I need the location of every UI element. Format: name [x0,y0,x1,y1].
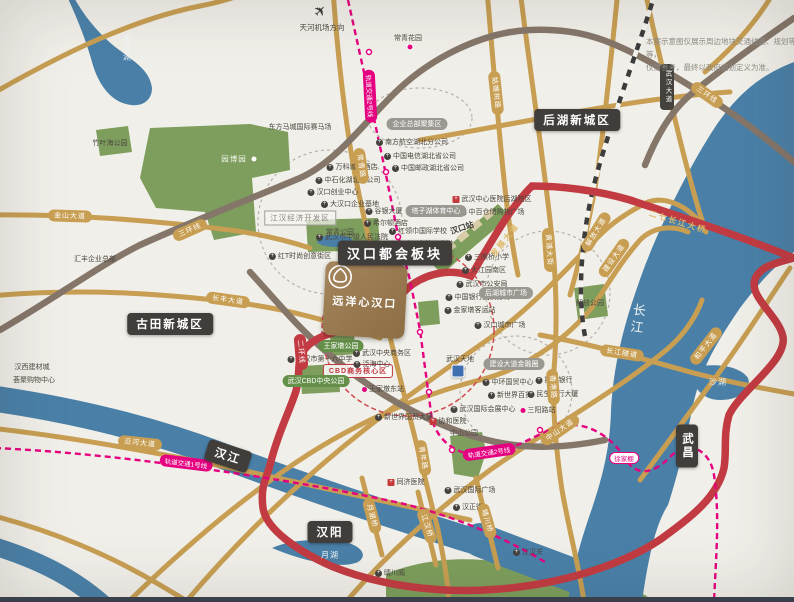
poi-marker-icon [384,153,391,160]
poi-marker-icon [269,253,276,260]
poi-marker-icon [488,392,495,399]
goldpill-label: 黄浦大街 [541,228,556,273]
park-dot [252,157,257,162]
poi-marker-icon [353,350,360,357]
graypill-label: 企业总部聚集区 [387,118,448,130]
poi-label: 武汉国际广场 [445,485,496,495]
metropill-label: 轨道交通2号线 [363,69,378,122]
poi-label: 常青花园 [394,33,422,43]
poi-label: 汉口城市广场 [475,320,526,330]
poi-label: 万科城市酒店 [327,162,378,172]
poi-label: 荟聚购物中心 [13,375,55,385]
poi-label: 武汉国际会展中心 [451,404,516,414]
poi-marker-icon [465,254,472,261]
goldpill-label: 中山大道 [539,412,582,447]
poi-label: 同济医院 [388,477,425,487]
goldpill-label: 金山大道 [48,209,92,223]
hospital-icon [388,479,395,486]
goldpill-label: 建设大道 [596,237,631,280]
park-label-yuanboyuan: 园博园 [221,154,247,165]
poi-marker-icon [453,504,460,511]
poi-marker-icon [288,356,295,363]
poi-label: 南方航空湖北分公司 [376,137,448,147]
lake-label-yuehu: 月湖 [321,550,339,561]
poi-marker-icon [366,208,373,215]
river-label-yangtze: 长江 [625,302,649,338]
goldpill-label: 和平大道 [688,325,725,367]
poi-label: 东方马城国际赛马场 [269,122,332,132]
poi-marker-icon [354,361,361,368]
goldpill-label: 晴川桥 [476,502,497,540]
poi-marker-icon [451,406,458,413]
district-label-hankou-metro: 汉口都会板块 [338,241,452,266]
poi-marker-icon [375,414,382,421]
poi-marker-icon [364,220,371,227]
poi-label: 中国电信湖北省公司 [384,151,456,161]
goldpill-label: 香港路 [546,369,560,406]
poi-label: 竹叶海公园 [93,138,128,148]
metro-station-icon [362,387,367,392]
goldpill-label: 江汉桥 [416,507,439,545]
poi-label: 常青公园 [326,227,354,237]
stationpill-label: 徐家棚 [609,452,639,464]
goldpill-label: 长丰大道 [205,291,250,309]
poi-label: 谷银大厦 [366,206,403,216]
poi-label: 中环国贸中心 [483,377,534,387]
hospital-icon [453,196,460,203]
poi-marker-icon [528,391,535,398]
poi-label: 泛海中心 [354,359,391,369]
poi-label: 王家墩东站 [362,384,404,394]
map-disclaimer: 本案示意图仅展示周边地块交通线路、规划等等， 仅供参考，最终以政府规划定义为准。 [646,36,794,74]
district-label-gutian: 古田新城区 [127,313,213,335]
redpill-label: 二环线 [293,334,308,371]
graypill-label: 塔子湖体育中心 [406,205,467,217]
poi-marker-icon [321,201,328,208]
poi-marker-icon [376,139,383,146]
goldtext-label: 二七长江大桥 [648,208,709,236]
project-name: 远洋心汉口 [332,292,398,311]
poi-label: 武汉中央商务区 [353,348,411,358]
district-label-wuchang: 武昌 [676,425,698,468]
poi-marker-icon [475,322,482,329]
wuhan-location-map: 汉口都会板块后湖新城区古田新城区汉阳武昌汉江长江金银湖沙湖月湖园博园竹叶海公园东… [0,0,794,602]
hospital-icon [430,418,437,425]
zonebox-label: 江汉经济开发区 [264,211,336,226]
station-dot [407,44,414,51]
poi-marker-icon [536,377,543,384]
poi-label: 三阳路站 [521,405,556,415]
project-marker: 远洋心汉口 [322,261,408,339]
graypill-label: 后湖城市广场 [479,287,533,299]
disclaimer-line1: 本案示意图仅展示周边地块交通线路、规划等等， [646,36,794,62]
poi-marker-icon [445,487,452,494]
poi-label: 汇丰企业总部 [74,254,116,264]
lake-label-jinyinhu: 金银湖 [122,35,133,62]
goldpill-label: 青年路 [414,439,432,477]
poi-label: 红T时尚创意街区 [269,251,331,261]
poi-marker-icon [316,234,323,241]
poi-label: 协和医院 [430,416,467,426]
poi-marker-icon [483,379,490,386]
poi-marker-icon [457,281,464,288]
poi-marker-icon [446,294,453,301]
poi-marker-icon [316,177,323,184]
poi-marker-icon [513,549,520,556]
poi-label: 金家墩客运站 [445,305,496,315]
goldpill-label: 沿河大道 [117,435,162,452]
metropill-label: 轨道交通2号线 [462,442,516,461]
graypill-label: 建设大道金融圈 [484,358,545,370]
goldpill-label: 长江隧道 [599,344,644,363]
goldpill-label: 姑嫂树路 [488,70,505,115]
poi-label: 中百仓储购物广场 [460,207,525,217]
project-logo-icon [324,261,356,293]
district-label-houhu: 后湖新城区 [534,109,620,131]
poi-label: 新世界国贸大厦 [375,412,433,422]
goldpill-label: 三环线 [171,217,209,243]
poi-label: 晴川阁 [375,568,405,578]
greenpill-label: 武汉CBD中央公园 [283,375,350,387]
landmark-icon-wuhantiandi [452,365,465,378]
poi-marker-icon [308,189,315,196]
poi-label: 武汉天地 [446,354,474,364]
poi-label: 大江园南区 [462,265,506,275]
airport-direction-label: 天河机场方向 [300,22,345,33]
goldpill-label: 解放大道 [579,210,612,254]
poi-label: 红领巾国际学校 [389,226,447,236]
lake-label-shahu: 沙湖 [709,377,727,388]
bottom-border-strip [0,597,794,602]
poi-label: 中山公园 [450,428,478,438]
poi-label: 解放公园 [576,298,604,308]
poi-label: 武汉中心医院后湖院区 [453,194,532,204]
district-label-hanyang: 汉阳 [308,521,353,543]
metro-station-icon [521,408,526,413]
poi-label: 新世界百货 [488,390,532,400]
disclaimer-line2: 仅供参考，最终以政府规划定义为准。 [646,62,794,75]
poi-marker-icon [389,228,396,235]
poi-label: 汉口创业中心 [308,187,359,197]
poi-label: 三眼桥小学 [465,252,509,262]
poi-marker-icon [375,570,382,577]
poi-marker-icon [392,165,399,172]
goldpill-label: 三环线 [689,80,725,110]
poi-marker-icon [327,164,334,171]
poi-marker-icon [445,307,452,314]
poi-label: 中国邮政湖北省公司 [392,163,464,173]
goldpill-label: 月湖桥 [362,497,383,535]
poi-label: 汉口站 [449,219,475,237]
poi-label: 汉西建材城 [15,362,50,372]
poi-label: 江汉关 [513,547,543,557]
poi-marker-icon [462,267,469,274]
poi-label: 中石化湖北省公司 [316,175,381,185]
